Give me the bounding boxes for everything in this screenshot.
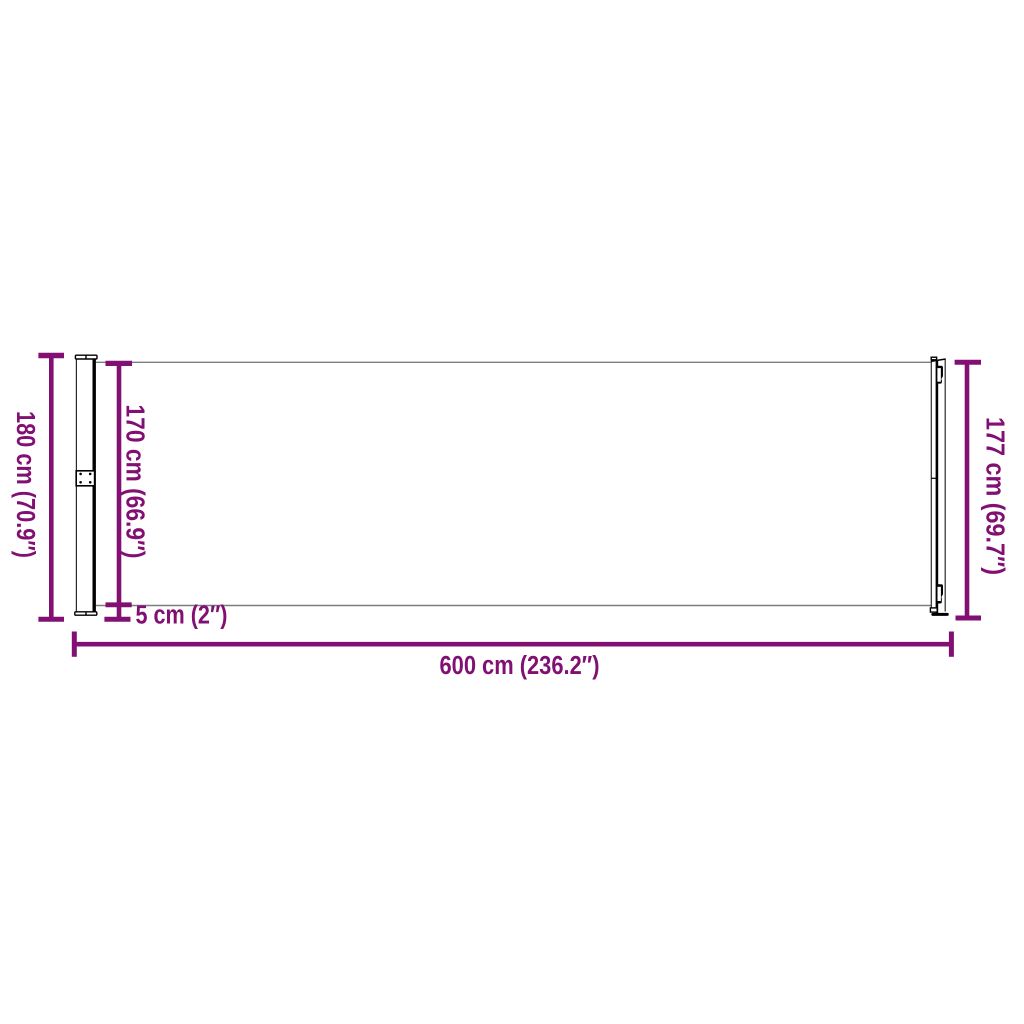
svg-text:180 cm (70.9″): 180 cm (70.9″) (11, 411, 39, 558)
svg-text:600 cm (236.2″): 600 cm (236.2″) (440, 652, 600, 680)
svg-text:170 cm (66.9″): 170 cm (66.9″) (120, 405, 148, 559)
svg-text:177 cm (69.7″): 177 cm (69.7″) (980, 417, 1008, 575)
svg-text:5 cm (2″): 5 cm (2″) (136, 601, 228, 629)
